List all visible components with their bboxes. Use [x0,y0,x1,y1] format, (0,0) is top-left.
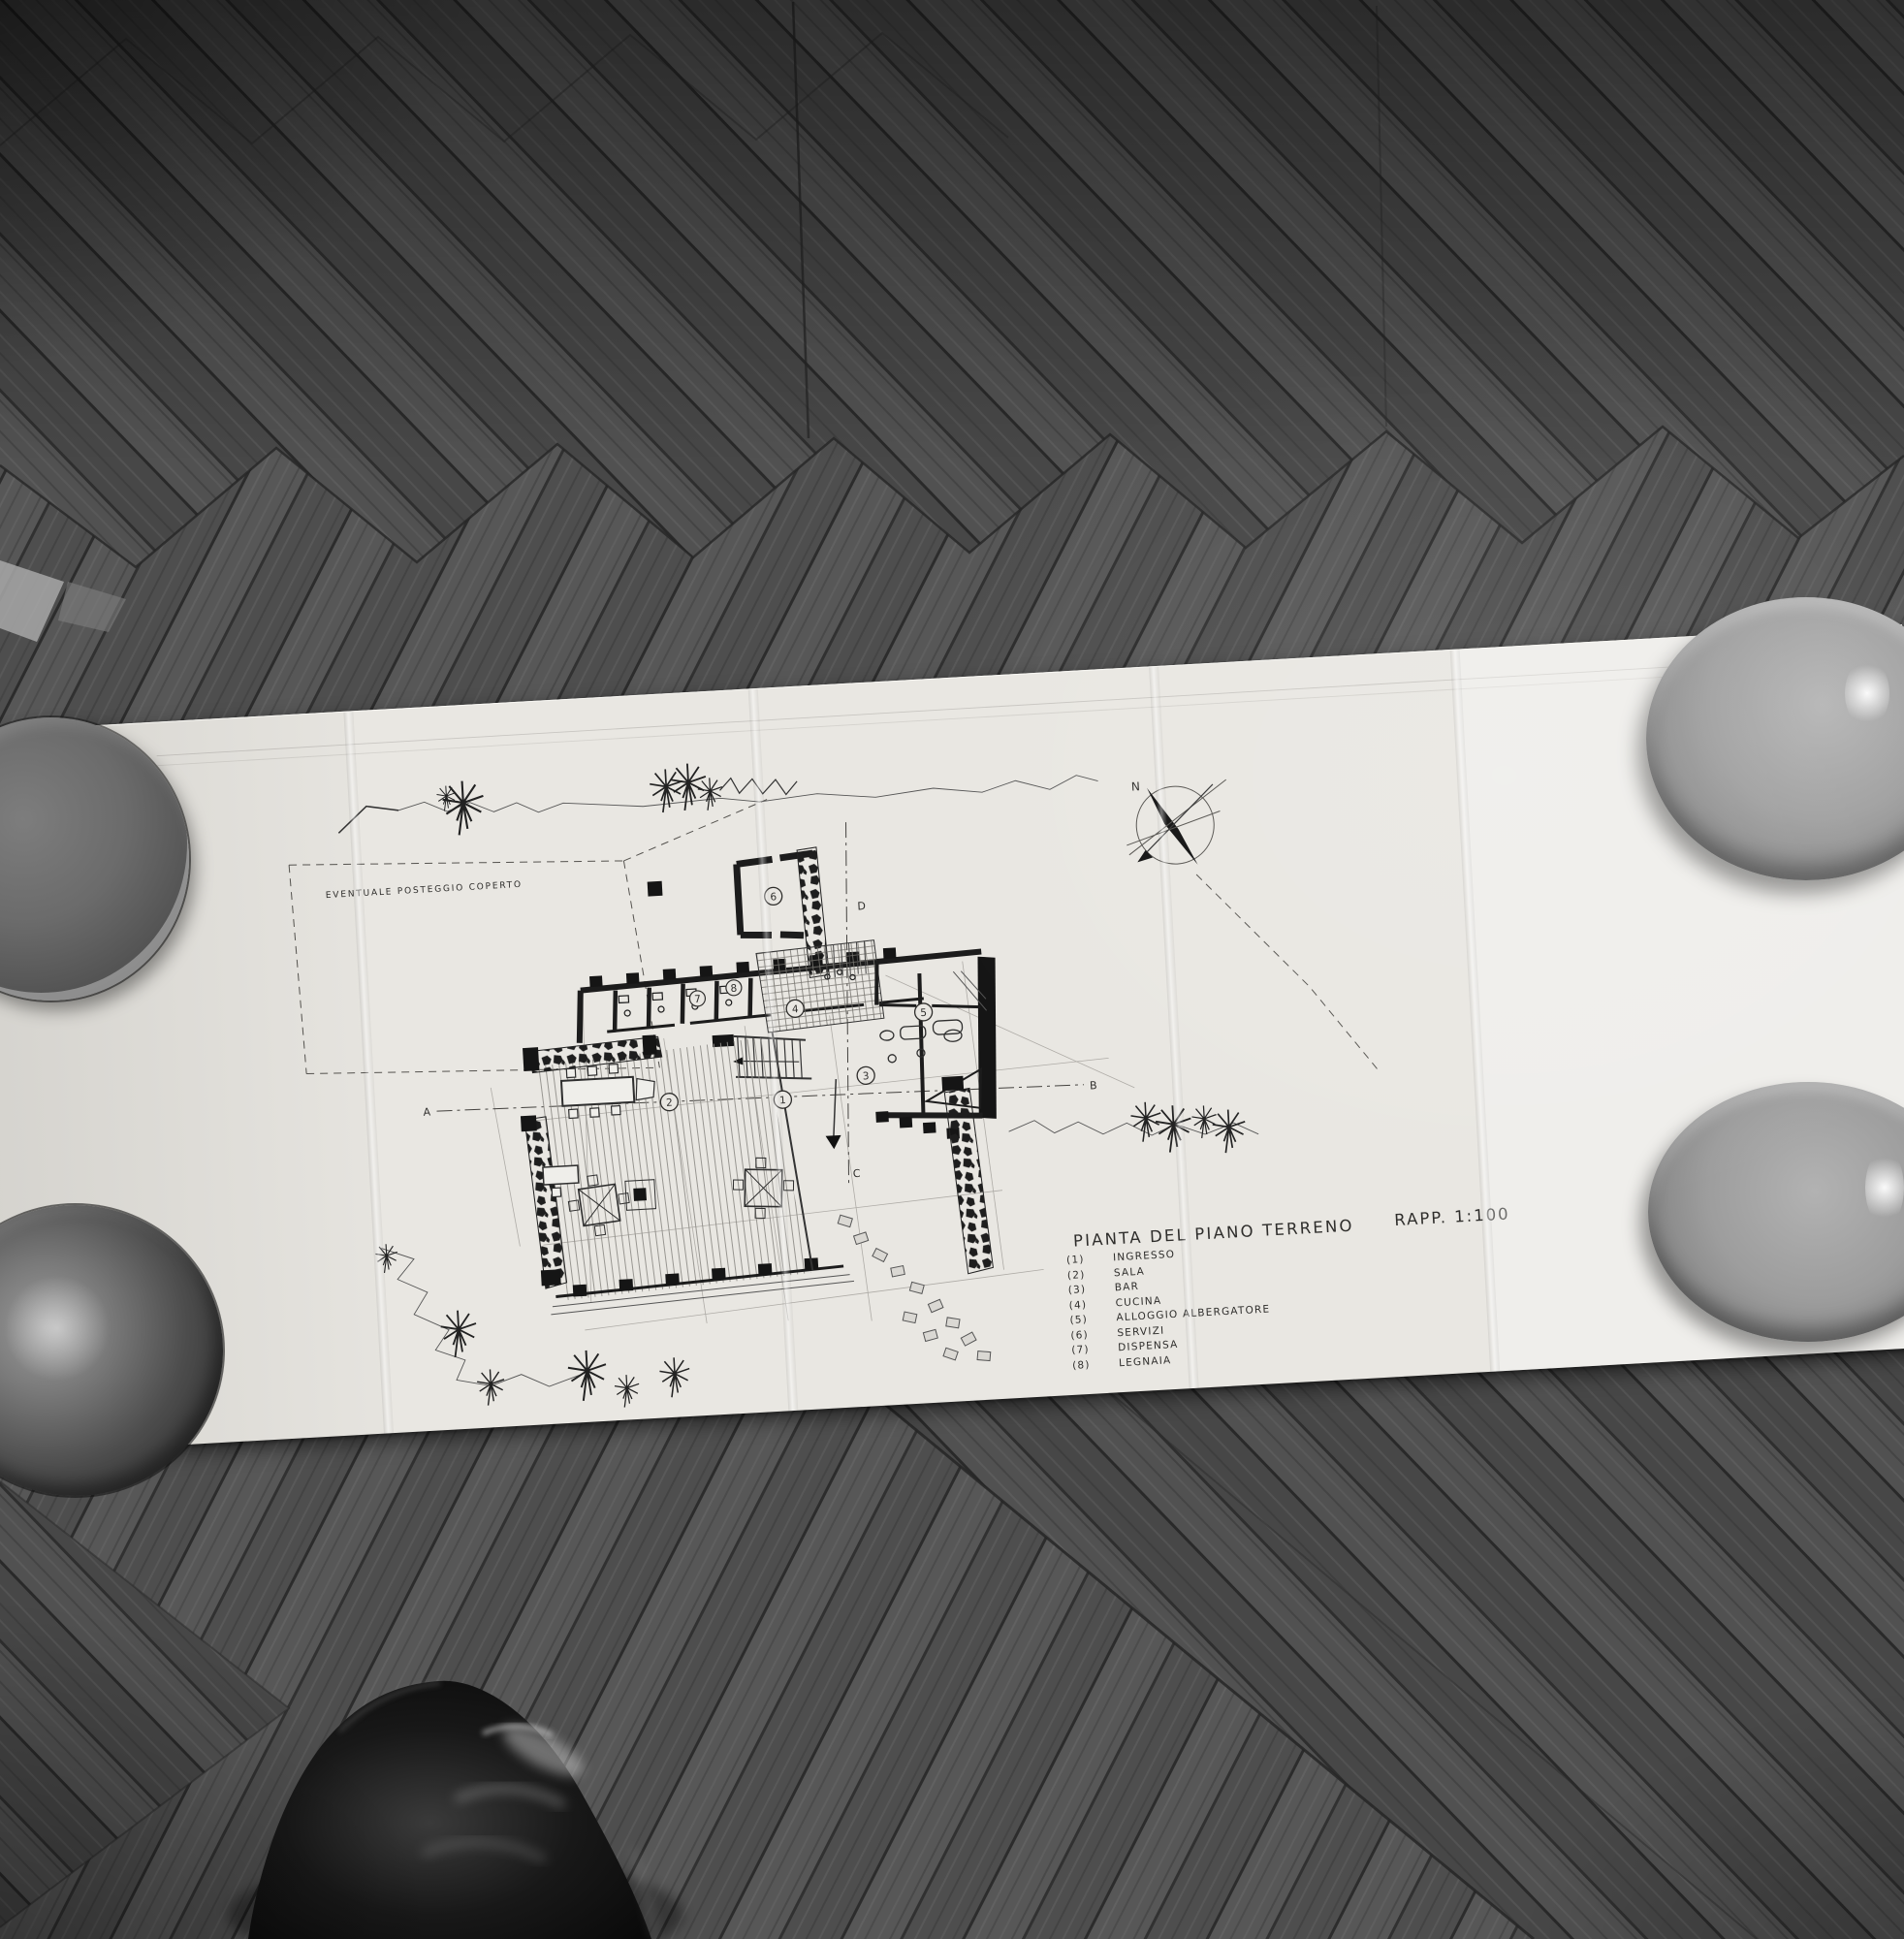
photo-scene: A B D C EVENTUALE POSTEGGIO COPERTO [0,0,1904,1939]
shoe-toe [248,1681,651,1939]
shoe [0,0,1904,1939]
